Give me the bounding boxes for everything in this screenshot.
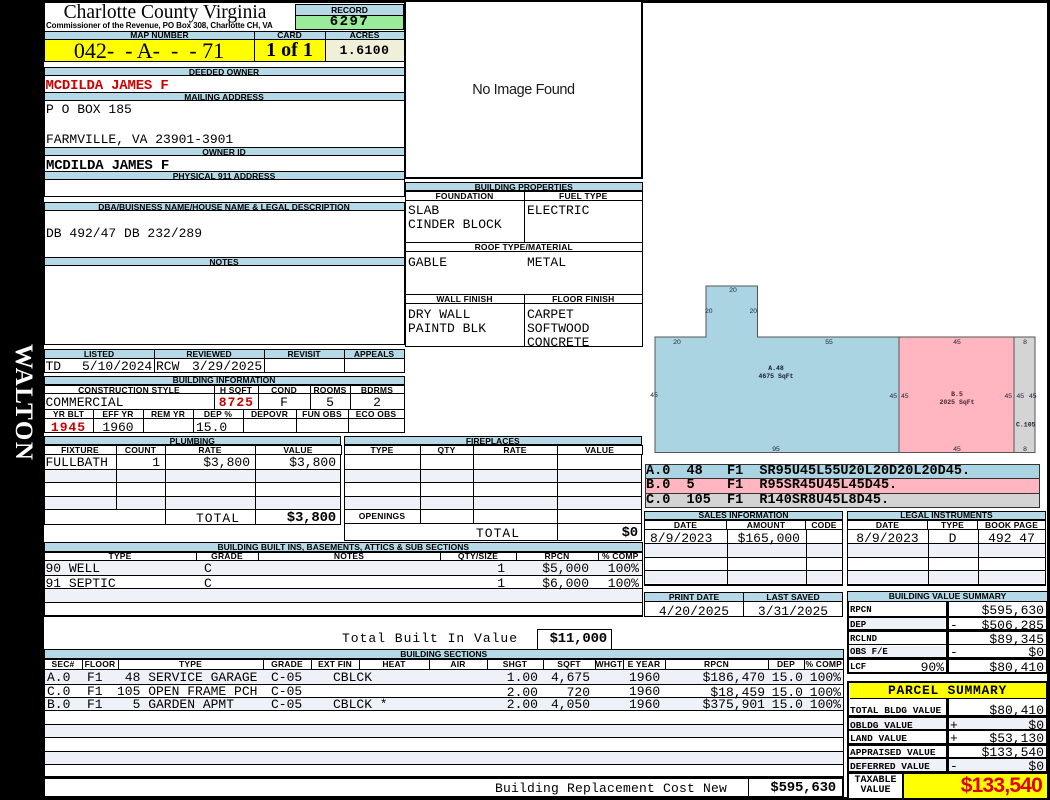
svg-text:20: 20 (673, 339, 681, 346)
svg-text:A.48: A.48 (768, 365, 784, 372)
svg-text:45: 45 (650, 392, 658, 399)
svg-text:2025 SqFt: 2025 SqFt (939, 399, 974, 406)
svg-text:45: 45 (953, 339, 961, 346)
svg-text:20: 20 (749, 308, 757, 315)
svg-text:95: 95 (772, 446, 780, 453)
svg-text:45: 45 (1017, 393, 1025, 400)
svg-text:20: 20 (729, 287, 737, 294)
svg-text:55: 55 (825, 339, 833, 346)
svg-text:8: 8 (1023, 446, 1027, 453)
svg-text:4675 SqFt: 4675 SqFt (758, 373, 793, 380)
svg-text:45: 45 (1004, 393, 1012, 400)
svg-text:45: 45 (901, 393, 909, 400)
svg-text:B.5: B.5 (951, 391, 963, 398)
svg-text:45: 45 (889, 393, 897, 400)
svg-text:8: 8 (1023, 339, 1027, 346)
svg-text:45: 45 (953, 446, 961, 453)
svg-text:20: 20 (705, 308, 713, 315)
svg-text:C.105: C.105 (1016, 422, 1036, 429)
svg-text:45: 45 (1029, 393, 1037, 400)
